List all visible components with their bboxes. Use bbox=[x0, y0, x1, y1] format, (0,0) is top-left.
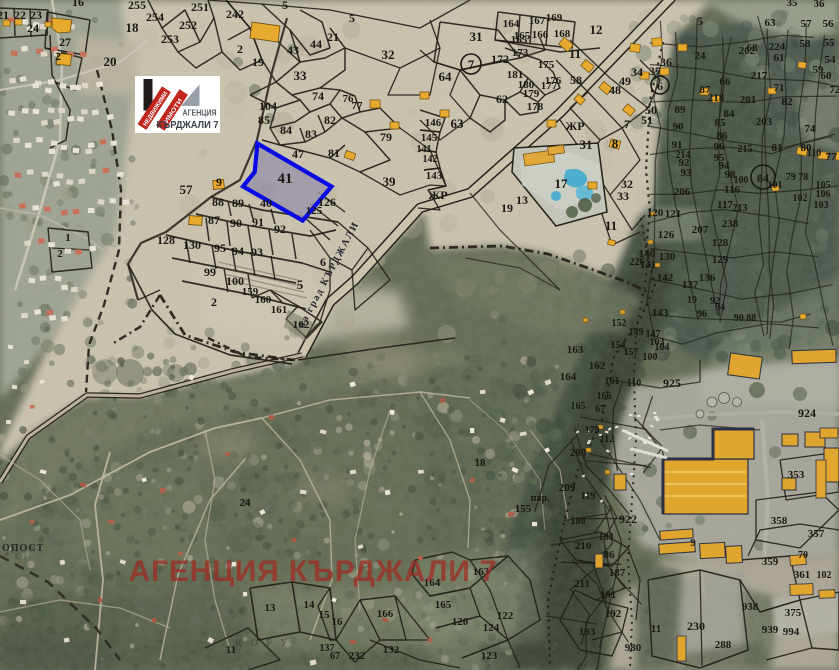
svg-text:922: 922 bbox=[619, 512, 637, 526]
svg-text:85: 85 bbox=[258, 113, 270, 127]
svg-text:179: 179 bbox=[585, 425, 600, 436]
svg-text:251: 251 bbox=[191, 0, 209, 14]
svg-text:132: 132 bbox=[383, 644, 400, 656]
svg-text:166: 166 bbox=[597, 391, 612, 402]
svg-text:АГЕНЦИЯ: АГЕНЦИЯ bbox=[183, 108, 217, 118]
svg-text:93: 93 bbox=[251, 245, 263, 259]
svg-text:994: 994 bbox=[783, 626, 800, 638]
svg-text:92: 92 bbox=[274, 222, 286, 236]
svg-text:83: 83 bbox=[305, 127, 317, 141]
svg-text:7: 7 bbox=[468, 57, 475, 72]
svg-text:207: 207 bbox=[692, 224, 709, 236]
svg-text:20: 20 bbox=[104, 54, 117, 69]
svg-text:137: 137 bbox=[682, 279, 699, 291]
svg-text:167: 167 bbox=[529, 15, 546, 27]
svg-text:128: 128 bbox=[712, 237, 729, 249]
svg-text:210: 210 bbox=[575, 540, 592, 552]
svg-text:924: 924 bbox=[798, 406, 816, 420]
svg-text:155: 155 bbox=[515, 503, 532, 515]
svg-text:9: 9 bbox=[690, 537, 696, 549]
svg-text:17: 17 bbox=[555, 176, 569, 191]
svg-text:36: 36 bbox=[660, 55, 672, 69]
svg-text:938: 938 bbox=[742, 601, 759, 613]
svg-text:55: 55 bbox=[824, 37, 836, 49]
svg-text:116: 116 bbox=[724, 184, 740, 196]
svg-text:60: 60 bbox=[821, 70, 833, 82]
svg-text:87: 87 bbox=[208, 213, 220, 227]
svg-text:123: 123 bbox=[481, 650, 498, 662]
svg-text:166: 166 bbox=[532, 29, 549, 41]
svg-text:47: 47 bbox=[292, 147, 304, 161]
svg-text:168: 168 bbox=[554, 28, 571, 40]
svg-text:103: 103 bbox=[814, 200, 829, 211]
svg-text:80: 80 bbox=[801, 142, 813, 154]
svg-text:130: 130 bbox=[183, 238, 201, 252]
svg-text:130: 130 bbox=[659, 251, 676, 263]
svg-text:161: 161 bbox=[271, 304, 288, 316]
svg-text:13: 13 bbox=[265, 602, 277, 614]
svg-text:206: 206 bbox=[674, 186, 691, 198]
svg-text:177: 177 bbox=[541, 80, 558, 92]
svg-text:2: 2 bbox=[237, 42, 243, 56]
svg-text:202: 202 bbox=[739, 45, 756, 57]
svg-text:89: 89 bbox=[232, 196, 244, 210]
svg-text:22: 22 bbox=[14, 8, 26, 22]
svg-text:63: 63 bbox=[451, 116, 465, 131]
svg-text:124: 124 bbox=[483, 622, 500, 634]
svg-text:36: 36 bbox=[814, 0, 826, 10]
svg-text:2: 2 bbox=[55, 49, 61, 63]
svg-text:230: 230 bbox=[687, 619, 705, 633]
svg-text:86: 86 bbox=[604, 549, 616, 561]
svg-text:90: 90 bbox=[230, 216, 242, 230]
svg-text:16: 16 bbox=[332, 616, 344, 628]
svg-text:70: 70 bbox=[798, 550, 808, 561]
svg-text:6: 6 bbox=[657, 79, 663, 93]
svg-text:58: 58 bbox=[800, 38, 812, 50]
svg-text:82: 82 bbox=[782, 96, 794, 108]
svg-text:101: 101 bbox=[768, 180, 783, 191]
svg-text:217: 217 bbox=[751, 70, 768, 82]
svg-text:980: 980 bbox=[625, 642, 642, 654]
svg-text:179: 179 bbox=[523, 88, 540, 100]
svg-text:117: 117 bbox=[717, 199, 733, 211]
svg-text:121: 121 bbox=[665, 208, 682, 220]
svg-text:361: 361 bbox=[794, 569, 811, 581]
svg-text:66: 66 bbox=[720, 76, 732, 88]
svg-text:175: 175 bbox=[538, 59, 555, 71]
svg-text:71: 71 bbox=[774, 82, 785, 94]
svg-text:172: 172 bbox=[491, 52, 509, 66]
svg-text:183: 183 bbox=[599, 532, 614, 543]
svg-text:359: 359 bbox=[762, 556, 779, 568]
svg-text:21: 21 bbox=[327, 30, 339, 44]
svg-text:КЪРДЖАЛИ 7: КЪРДЖАЛИ 7 bbox=[157, 119, 219, 131]
svg-text:119: 119 bbox=[581, 491, 595, 502]
svg-text:136: 136 bbox=[699, 272, 716, 284]
svg-text:31: 31 bbox=[580, 137, 593, 152]
svg-text:40: 40 bbox=[260, 196, 272, 210]
svg-text:67: 67 bbox=[595, 404, 605, 415]
svg-text:18: 18 bbox=[475, 457, 487, 469]
svg-text:34: 34 bbox=[631, 65, 643, 79]
svg-text:104: 104 bbox=[259, 99, 277, 113]
svg-text:5: 5 bbox=[282, 0, 288, 12]
svg-text:357: 357 bbox=[808, 528, 825, 540]
svg-text:57: 57 bbox=[180, 182, 194, 197]
svg-text:23: 23 bbox=[30, 8, 42, 22]
svg-text:8: 8 bbox=[612, 136, 619, 151]
svg-text:84: 84 bbox=[757, 171, 769, 185]
svg-text:6: 6 bbox=[320, 255, 326, 269]
svg-text:125: 125 bbox=[306, 205, 323, 217]
svg-text:145: 145 bbox=[421, 132, 438, 144]
svg-text:102: 102 bbox=[793, 193, 808, 204]
svg-text:58: 58 bbox=[570, 73, 582, 87]
svg-text:74: 74 bbox=[312, 89, 324, 103]
svg-text:142: 142 bbox=[423, 154, 438, 165]
svg-text:187: 187 bbox=[609, 567, 626, 579]
svg-text:67: 67 bbox=[330, 651, 340, 662]
svg-text:169: 169 bbox=[546, 12, 563, 24]
svg-text:49: 49 bbox=[619, 74, 631, 88]
svg-text:33: 33 bbox=[617, 189, 629, 203]
svg-text:128: 128 bbox=[157, 233, 175, 247]
svg-text:191: 191 bbox=[600, 589, 617, 601]
svg-text:208: 208 bbox=[570, 447, 587, 459]
svg-text:5: 5 bbox=[697, 14, 703, 28]
svg-text:81: 81 bbox=[772, 142, 783, 154]
svg-text:81: 81 bbox=[328, 146, 340, 160]
svg-text:90: 90 bbox=[673, 121, 685, 133]
svg-text:100: 100 bbox=[643, 352, 658, 363]
svg-text:238: 238 bbox=[722, 218, 739, 230]
svg-text:1: 1 bbox=[65, 232, 71, 244]
svg-text:99: 99 bbox=[204, 265, 216, 279]
svg-text:13: 13 bbox=[516, 193, 528, 207]
svg-text:56: 56 bbox=[823, 18, 835, 30]
svg-text:39: 39 bbox=[383, 174, 397, 189]
svg-text:74: 74 bbox=[805, 123, 817, 135]
svg-text:288: 288 bbox=[715, 639, 732, 651]
svg-text:16: 16 bbox=[72, 0, 84, 9]
svg-text:164: 164 bbox=[503, 18, 520, 30]
svg-text:91: 91 bbox=[252, 215, 264, 229]
svg-text:161: 161 bbox=[605, 376, 620, 387]
svg-text:АГЕНЦИЯ КЪРДЖАЛИ 7: АГЕНЦИЯ КЪРДЖАЛИ 7 bbox=[129, 555, 498, 588]
svg-text:62: 62 bbox=[496, 92, 508, 106]
svg-text:162: 162 bbox=[589, 360, 606, 372]
svg-text:18: 18 bbox=[126, 20, 140, 35]
svg-text:77: 77 bbox=[352, 100, 364, 112]
svg-text:85: 85 bbox=[715, 117, 727, 129]
svg-text:160: 160 bbox=[255, 294, 272, 306]
svg-text:63: 63 bbox=[765, 17, 777, 29]
svg-text:939: 939 bbox=[762, 624, 779, 636]
svg-text:11: 11 bbox=[569, 46, 581, 61]
svg-text:375: 375 bbox=[785, 607, 802, 619]
svg-text:43: 43 bbox=[287, 43, 299, 57]
svg-text:90 88: 90 88 bbox=[734, 313, 757, 324]
svg-text:ОПОСТ: ОПОСТ bbox=[2, 543, 44, 554]
svg-text:51: 51 bbox=[641, 113, 653, 127]
svg-text:213: 213 bbox=[733, 203, 748, 214]
svg-text:19: 19 bbox=[501, 201, 513, 215]
svg-text:173: 173 bbox=[512, 47, 529, 59]
svg-text:165: 165 bbox=[435, 599, 452, 611]
svg-text:82: 82 bbox=[324, 113, 336, 127]
svg-text:пар.: пар. bbox=[531, 493, 550, 504]
svg-text:11: 11 bbox=[605, 218, 617, 233]
svg-text:19: 19 bbox=[687, 295, 697, 306]
svg-text:242: 242 bbox=[226, 7, 244, 21]
svg-text:7: 7 bbox=[624, 117, 630, 131]
svg-text:166: 166 bbox=[377, 608, 394, 620]
svg-text:126: 126 bbox=[658, 229, 675, 241]
svg-text:112: 112 bbox=[600, 434, 614, 445]
svg-text:31: 31 bbox=[470, 29, 483, 44]
svg-text:95: 95 bbox=[214, 241, 226, 255]
svg-text:201: 201 bbox=[740, 94, 757, 106]
svg-text:2: 2 bbox=[211, 295, 217, 309]
svg-text:106: 106 bbox=[816, 189, 831, 200]
svg-text:218: 218 bbox=[708, 92, 725, 104]
svg-text:226: 226 bbox=[630, 257, 645, 268]
svg-text:252: 252 bbox=[179, 18, 197, 32]
svg-text:203: 203 bbox=[756, 116, 773, 128]
svg-text:64: 64 bbox=[439, 69, 453, 84]
svg-text:79 78: 79 78 bbox=[786, 172, 809, 183]
svg-text:5: 5 bbox=[297, 277, 304, 292]
svg-text:122: 122 bbox=[497, 610, 514, 622]
svg-text:164: 164 bbox=[560, 371, 577, 383]
svg-text:180: 180 bbox=[571, 516, 586, 527]
svg-text:102: 102 bbox=[817, 570, 832, 581]
svg-text:14: 14 bbox=[304, 599, 316, 611]
svg-text:353: 353 bbox=[788, 469, 805, 481]
svg-text:93: 93 bbox=[681, 167, 693, 179]
svg-text:24: 24 bbox=[695, 50, 707, 62]
svg-text:79: 79 bbox=[380, 130, 392, 144]
svg-text:211: 211 bbox=[574, 578, 590, 590]
svg-text:15: 15 bbox=[319, 609, 331, 621]
svg-text:254: 254 bbox=[146, 10, 164, 24]
svg-text:163: 163 bbox=[567, 344, 584, 356]
svg-text:77: 77 bbox=[826, 151, 838, 163]
svg-text:54: 54 bbox=[825, 54, 837, 66]
svg-text:24: 24 bbox=[240, 497, 252, 509]
svg-text:57: 57 bbox=[801, 18, 813, 30]
svg-text:5: 5 bbox=[349, 11, 355, 25]
svg-text:149: 149 bbox=[629, 327, 644, 338]
svg-text:89: 89 bbox=[675, 104, 687, 116]
svg-text:146: 146 bbox=[425, 117, 442, 129]
svg-text:165: 165 bbox=[514, 30, 531, 42]
svg-text:84: 84 bbox=[280, 123, 292, 137]
svg-text:358: 358 bbox=[771, 515, 788, 527]
svg-text:143: 143 bbox=[426, 170, 443, 182]
svg-text:32: 32 bbox=[382, 47, 395, 62]
svg-text:44: 44 bbox=[310, 37, 322, 51]
svg-text:88: 88 bbox=[212, 195, 224, 209]
svg-text:41: 41 bbox=[278, 171, 293, 187]
svg-text:120: 120 bbox=[647, 207, 664, 219]
svg-text:129: 129 bbox=[712, 254, 729, 266]
svg-text:ЖР: ЖР bbox=[565, 119, 584, 133]
svg-text:19: 19 bbox=[252, 55, 264, 69]
svg-text:35: 35 bbox=[787, 0, 799, 9]
svg-text:94: 94 bbox=[715, 302, 725, 313]
svg-text:193: 193 bbox=[579, 626, 596, 638]
svg-text:61: 61 bbox=[774, 52, 785, 64]
svg-text:110: 110 bbox=[627, 378, 641, 389]
svg-text:2: 2 bbox=[57, 248, 63, 260]
svg-text:9: 9 bbox=[216, 175, 222, 189]
svg-text:165: 165 bbox=[571, 401, 586, 412]
svg-text:К О Р У: К О Р У bbox=[235, 638, 290, 649]
svg-text:255: 255 bbox=[128, 0, 146, 12]
svg-text:178: 178 bbox=[527, 101, 544, 113]
svg-text:21: 21 bbox=[0, 8, 9, 22]
svg-text:143: 143 bbox=[652, 307, 669, 319]
svg-text:192: 192 bbox=[605, 608, 622, 620]
svg-text:925: 925 bbox=[663, 376, 681, 390]
svg-text:152: 152 bbox=[612, 318, 627, 329]
svg-text:27: 27 bbox=[59, 35, 71, 49]
svg-text:24: 24 bbox=[27, 21, 39, 35]
svg-text:253: 253 bbox=[161, 32, 179, 46]
svg-text:96: 96 bbox=[697, 309, 707, 320]
svg-text:157: 157 bbox=[624, 347, 639, 358]
svg-text:ЖР: ЖР bbox=[428, 188, 447, 202]
svg-text:33: 33 bbox=[294, 68, 308, 83]
svg-text:232: 232 bbox=[349, 650, 366, 662]
svg-text:11: 11 bbox=[651, 623, 661, 635]
svg-text:72: 72 bbox=[830, 84, 839, 96]
svg-text:209: 209 bbox=[559, 482, 576, 494]
svg-text:94: 94 bbox=[232, 244, 244, 258]
svg-text:142: 142 bbox=[657, 272, 674, 284]
svg-text:12: 12 bbox=[590, 22, 603, 37]
svg-text:120: 120 bbox=[452, 616, 469, 628]
svg-text:215: 215 bbox=[738, 144, 753, 155]
